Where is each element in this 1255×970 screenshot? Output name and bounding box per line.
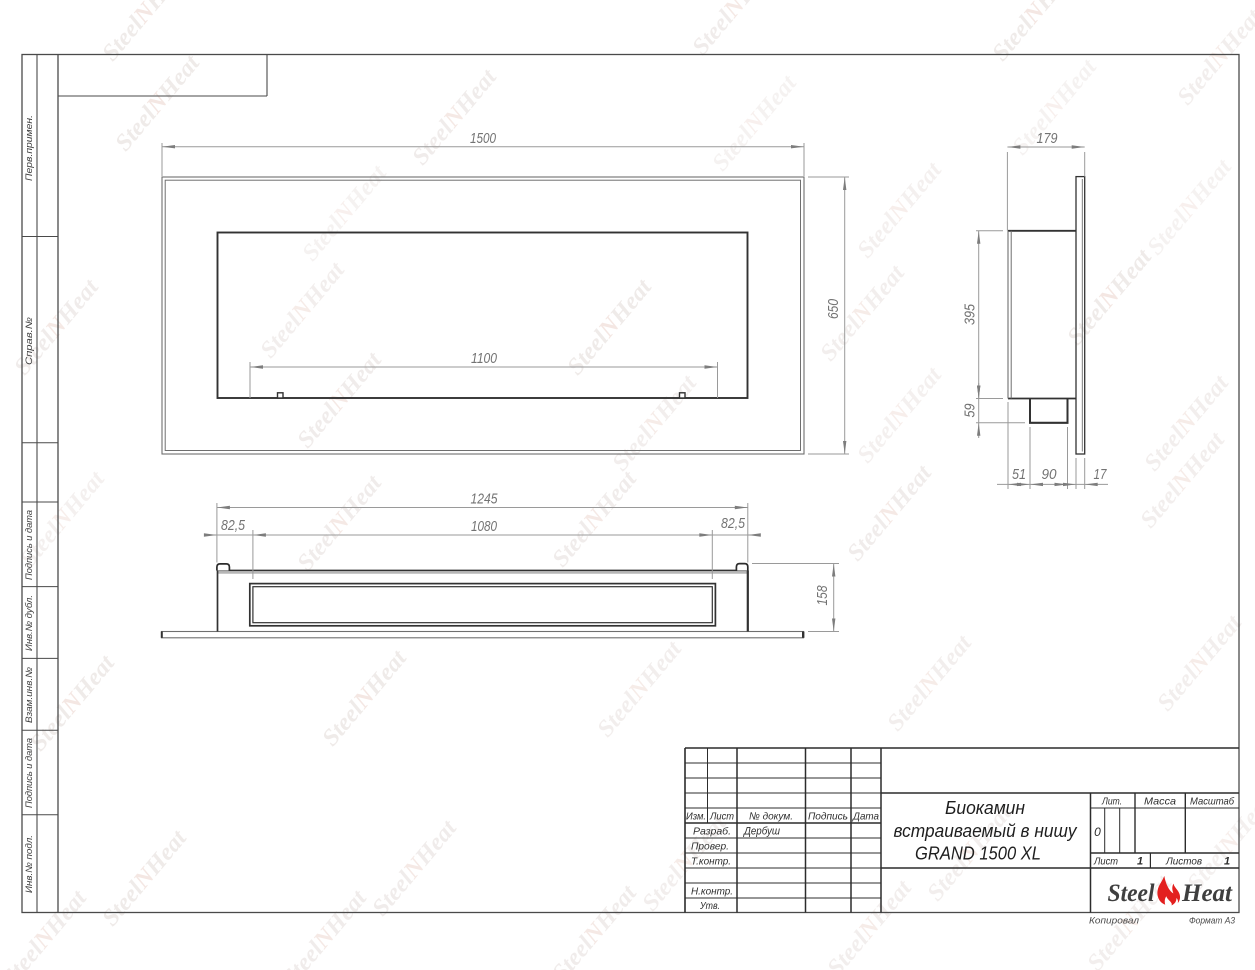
svg-text:Взам.инв.№: Взам.инв.№: [24, 667, 34, 723]
svg-text:1500: 1500: [470, 130, 496, 147]
svg-text:Утв.: Утв.: [699, 900, 720, 912]
svg-text:0: 0: [1094, 825, 1101, 839]
svg-text:Провер.: Провер.: [691, 841, 729, 853]
svg-text:встраиваемый в нишу: встраиваемый в нишу: [894, 821, 1078, 841]
svg-text:395: 395: [962, 304, 979, 325]
svg-text:Разраб.: Разраб.: [693, 826, 731, 838]
svg-text:179: 179: [1037, 130, 1058, 147]
svg-text:Подпись и дата: Подпись и дата: [24, 510, 34, 580]
svg-text:Масштаб: Масштаб: [1190, 796, 1235, 808]
svg-text:Изм.: Изм.: [686, 811, 706, 823]
svg-text:90: 90: [1042, 466, 1057, 483]
svg-text:650: 650: [825, 299, 842, 319]
svg-text:158: 158: [815, 585, 831, 606]
svg-text:Steel: Steel: [1108, 880, 1155, 907]
svg-text:Справ.№: Справ.№: [24, 317, 34, 365]
svg-text:1245: 1245: [471, 491, 498, 508]
svg-text:Лит.: Лит.: [1101, 796, 1122, 808]
svg-text:Масса: Масса: [1144, 796, 1176, 808]
svg-text:Н.контр.: Н.контр.: [691, 886, 733, 898]
svg-text:Дата: Дата: [852, 811, 879, 823]
svg-text:82,5: 82,5: [721, 516, 746, 532]
svg-text:82,5: 82,5: [221, 518, 246, 534]
svg-text:17: 17: [1094, 466, 1107, 483]
svg-text:1080: 1080: [471, 518, 497, 535]
svg-text:Подпись: Подпись: [808, 811, 848, 823]
svg-text:1: 1: [1137, 856, 1143, 868]
svg-text:Листов: Листов: [1165, 856, 1202, 868]
svg-text:1: 1: [1224, 856, 1230, 868]
svg-text:Перв.примен.: Перв.примен.: [24, 115, 34, 181]
svg-text:Копировал: Копировал: [1089, 916, 1139, 926]
svg-text:Heat: Heat: [1181, 880, 1233, 907]
svg-text:GRAND 1500 XL: GRAND 1500 XL: [915, 844, 1041, 864]
svg-text:Лист: Лист: [1093, 856, 1118, 868]
svg-text:59: 59: [962, 403, 979, 417]
svg-text:1100: 1100: [471, 350, 497, 367]
svg-text:Дербуш: Дербуш: [742, 826, 780, 838]
svg-text:Подпись и дата: Подпись и дата: [24, 738, 34, 808]
svg-text:№ докум.: № докум.: [749, 811, 793, 823]
svg-text:Лист: Лист: [709, 811, 734, 823]
svg-text:Т.контр.: Т.контр.: [691, 856, 731, 868]
svg-text:Биокамин: Биокамин: [945, 798, 1025, 818]
svg-text:Инв.№ подл.: Инв.№ подл.: [24, 835, 34, 893]
svg-text:Формат А3: Формат А3: [1189, 916, 1235, 926]
svg-text:Инв.№ дубл.: Инв.№ дубл.: [24, 595, 34, 651]
svg-text:51: 51: [1012, 466, 1026, 483]
